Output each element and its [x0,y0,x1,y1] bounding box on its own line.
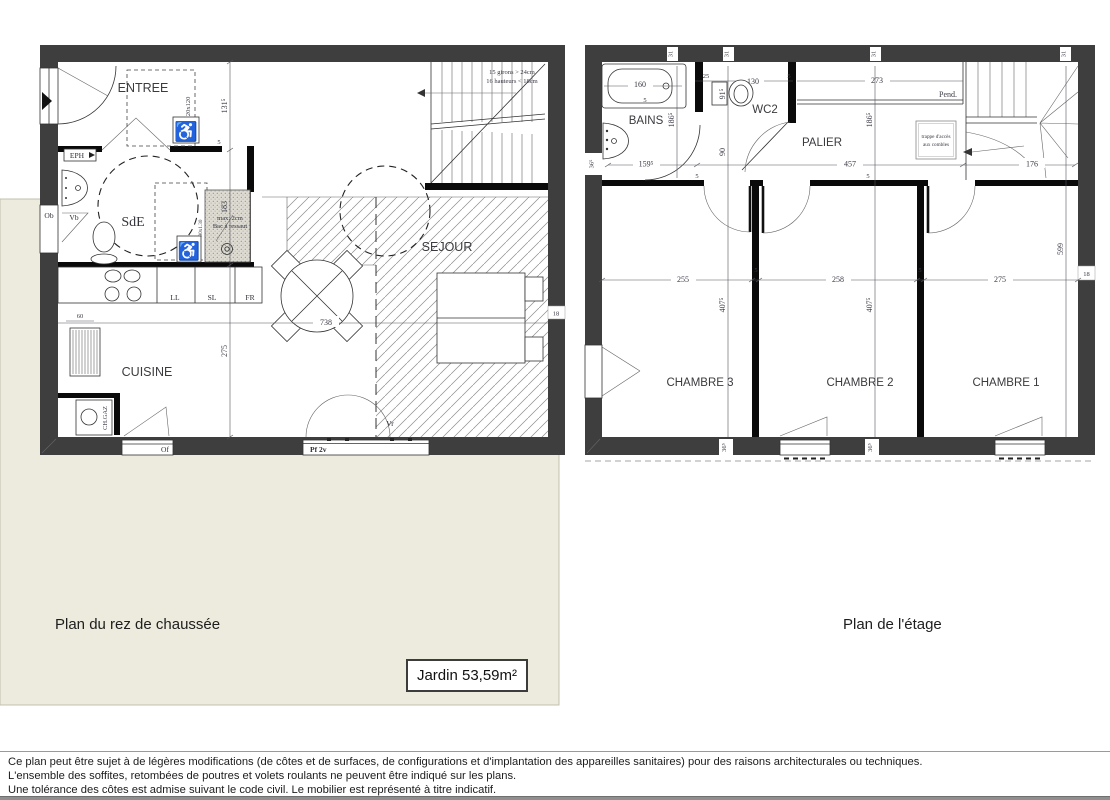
caption-ground-floor: Plan du rez de chaussée [55,616,220,633]
dim-738: 738 [320,318,332,327]
dim-186: 186⁵ [865,112,874,127]
room-label-entree: ENTREE [118,81,169,95]
uf-zone-wall-2 [750,180,763,186]
disclaimer-line-2: L'ensemble des soffites, retombées de po… [0,769,1110,783]
gf-eph-box: EPH [64,149,96,161]
door-label-pf2v: Pf 2v [310,445,327,454]
dim-90: 90 [718,148,727,156]
kitchen-counter [58,267,262,303]
appliance-label-fr: FR [245,293,254,302]
dim-18: 18 [553,311,560,318]
stair-note-2: 16 hauteurs < 18cm [486,78,538,85]
attic-hatch-label-2: aux combles [923,142,949,148]
wardrobe-label: Pend. [939,90,957,99]
wheelchair-icon: ♿ [178,240,200,261]
uf-zone-wall-4 [975,180,1078,186]
wheelchair-icon: ♿ [174,120,198,143]
gf-wall-top [40,45,565,62]
dim-457: 457 [844,160,856,169]
dim-91: 91⁵ [718,88,727,99]
garden-area-label: Jardin 53,59m² [406,659,528,692]
gf-stair-wall [425,183,548,190]
page-bottom-bar [0,796,1110,800]
room-label-bains: BAINS [629,115,664,127]
dim-5: 5 [787,73,790,80]
dim-159: 159⁵ [639,160,654,169]
dim-407: 407⁵ [718,297,727,312]
room-label-sde: SdE [121,215,144,230]
dim-599: 599 [1056,243,1065,255]
dim-18: 18 [1083,271,1090,278]
uf-zone-wall-1 [602,180,704,186]
dim-5: 5 [866,173,869,180]
uf-partition-ch3-ch2 [752,186,759,437]
caption-upper-floor: Plan de l'étage [843,616,942,633]
dim-36: 36⁵ [589,160,596,169]
shower-size-label: 90x1.30 [198,219,204,236]
vent-label-vr: Vr [386,419,394,428]
dim-5: 5 [643,97,646,104]
dim-255: 255 [677,275,689,284]
gf-sde-wall-top-right [170,146,222,152]
upper-floor-plan: 31 31 31 31 36⁵ 36⁵ 36⁵ 18 [585,45,1095,461]
room-label-sejour: SEJOUR [422,240,473,254]
boiler-label-chgaz: CH.GAZ [102,406,109,430]
gf-sde-wall-right [247,146,254,192]
disclaimer-footer: Ce plan peut être sujet à de légères mod… [0,751,1110,797]
gf-frenchdoor-pf2v: Pf 2v [303,438,429,455]
attic-hatch-box: trappe d'accès aux combles [916,121,956,159]
uf-wall-right [1078,45,1095,455]
dim-31: 31 [724,51,731,58]
dim-407: 407⁵ [865,297,874,312]
uf-wc2-wall [788,62,796,123]
appliance-label-sl: SL [208,293,217,302]
dim-5: 5 [217,139,220,146]
dim-31: 31 [871,51,878,58]
appliance-label-ll: LL [170,293,180,302]
dim-183: 183 [220,201,229,213]
room-label-chambre3: CHAMBRE 3 [666,377,733,389]
gf-wall-right [548,45,565,455]
room-label-palier: PALIER [802,137,842,149]
gf-entry-sidelight [40,68,58,124]
dim-273: 273 [871,76,883,85]
dim-5: 5 [918,267,921,274]
disclaimer-line-1: Ce plan peut être sujet à de légères mod… [0,752,1110,769]
window-label-ob: Ob [44,211,53,220]
dim-5: 5 [695,173,698,180]
dim-131: 131⁵ [220,98,229,113]
dim-258: 258 [832,275,844,284]
room-label-cuisine: CUISINE [122,365,173,379]
ground-floor-plan: Ob Of Pf 2v 5 [40,45,565,455]
toilet-icon [93,222,115,252]
attic-hatch-label-1: trappe d'accès [921,134,950,140]
window-label-of: Of [161,445,169,454]
gf-shower: max. 2cm Bac à ressaut 90x1.30 [198,190,250,262]
eph-label: EPH [70,151,85,160]
room-label-chambre2: CHAMBRE 2 [826,377,893,389]
clearance-label: 120x120 [185,97,192,120]
uf-wall-top [585,45,1095,62]
uf-partition-ch2-ch1 [917,186,924,437]
room-label-chambre1: CHAMBRE 1 [972,377,1039,389]
uf-zone-wall-3 [810,180,928,186]
dim-36: 36⁵ [867,443,874,452]
dim-31: 31 [1061,51,1068,58]
dim-31: 31 [668,51,675,58]
radiator-icon [70,328,100,376]
dim-60: 60 [77,313,84,320]
stair-note-1: 15 girons > 24cm [489,69,535,76]
dim-176: 176 [1026,160,1038,169]
vent-label-vb: Vb [69,213,78,222]
gf-wall-bottom [40,437,565,455]
uf-bains-wall [695,62,703,112]
dim-5: 5 [754,267,757,274]
dim-25: 25 [703,73,710,80]
gf-window-of: Of [122,440,173,455]
dim-275: 275 [220,345,229,357]
dim-186: 186⁵ [667,112,676,127]
dim-275: 275 [994,275,1006,284]
floorplan-drawing: Ob Of Pf 2v 5 [0,0,1110,750]
dim-36: 36⁵ [721,443,728,452]
dim-160: 160 [634,80,646,89]
gf-window-ob: Ob [40,205,58,253]
room-label-wc2: WC2 [752,104,778,116]
floorplan-page: Ob Of Pf 2v 5 [0,0,1110,800]
dining-table-icon [271,250,362,341]
